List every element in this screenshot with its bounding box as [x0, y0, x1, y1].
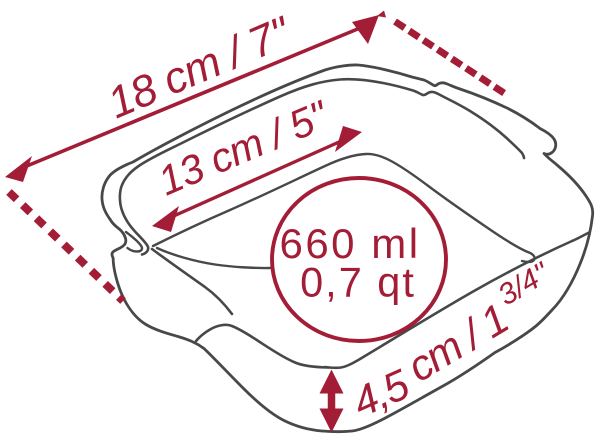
svg-text:13 cm / 5'': 13 cm / 5'': [152, 91, 336, 204]
svg-text:0,7 qt: 0,7 qt: [300, 259, 416, 306]
svg-text:18 cm / 7'': 18 cm / 7'': [101, 7, 299, 128]
svg-text:3/4'': 3/4'': [493, 256, 557, 312]
svg-text:4,5: 4,5: [346, 361, 417, 427]
